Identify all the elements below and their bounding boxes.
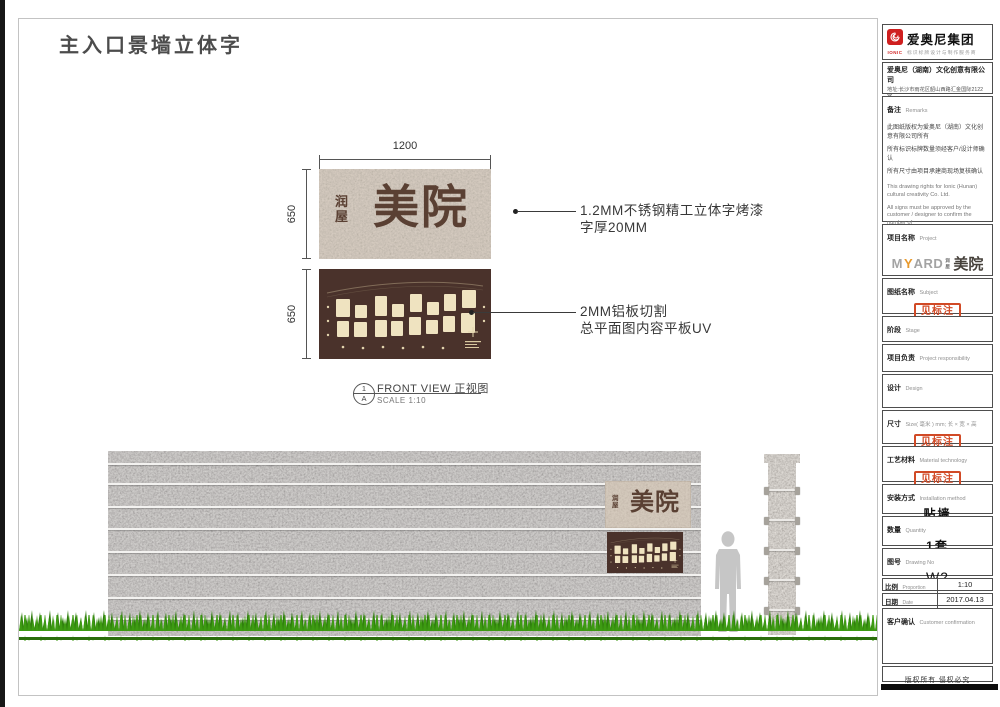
copyright-box: 版权所有 侵权必究 xyxy=(882,666,993,682)
myard-logo-small: 润屋 xyxy=(945,258,951,269)
installation-label-en: Installation method xyxy=(919,496,965,502)
site-plan-graphic xyxy=(607,532,683,573)
column-nub xyxy=(764,517,769,525)
drawing-no-box: 图号 Drawing No W2 xyxy=(882,548,993,576)
scan-edge-strip xyxy=(0,0,5,707)
stone-joint xyxy=(108,574,701,576)
responsibility-label-zh: 项目负责 xyxy=(887,355,915,362)
copyright-text: 版权所有 侵权必究 xyxy=(905,677,970,684)
wall-plan-panel xyxy=(607,532,683,573)
remarks-zh-3: 所有尺寸由项目承建商现场复核确认 xyxy=(887,168,988,177)
date-label-en: Date xyxy=(902,600,913,606)
dim-tick xyxy=(302,258,311,259)
myard-logo-accent: Y xyxy=(904,256,913,271)
remarks-en-1: This drawing rights for Ionic (Hunan) cu… xyxy=(887,184,988,200)
dim-tick xyxy=(302,358,311,359)
subject-label-zh: 图纸名称 xyxy=(887,289,915,296)
company-name: 爱奥尼（湖南）文化创意有限公司 xyxy=(887,65,988,85)
myard-logo-post: ARD xyxy=(914,256,944,271)
drawing-area: 主入口景墙立体字 1200 润屋 美院 650 650 xyxy=(18,18,878,696)
dim-width-line xyxy=(319,159,491,160)
view-scale: SCALE 1:10 xyxy=(377,396,426,405)
project-label-en: Project xyxy=(919,236,936,242)
note1-line2: 字厚20MM xyxy=(580,219,830,236)
brand-small-text: 润屋 xyxy=(612,495,620,510)
design-box: 设计 Design xyxy=(882,374,993,408)
stone-joint xyxy=(768,549,796,551)
size-box: 尺寸 Size( 毫米 ) mm; 长 × 宽 × 高 见标注 xyxy=(882,410,993,444)
date-value: 2017.04.13 xyxy=(938,595,992,604)
dim-width-label: 1200 xyxy=(319,140,491,152)
column-nub xyxy=(764,547,769,555)
title-block: IONIC 爱奥尼集团 标识标牌设计与制作服务商 爱奥尼（湖南）文化创意有限公司… xyxy=(881,0,998,707)
proportion-value: 1:10 xyxy=(938,580,992,589)
view-letter: A xyxy=(354,394,374,403)
column-nub xyxy=(795,547,800,555)
stage-label-en: Stage xyxy=(905,328,919,334)
material-note-2: 2MM铝板切割 总平面图内容平板UV xyxy=(580,303,830,338)
brand-large-text: 美院 xyxy=(621,491,689,515)
material-box: 工艺材料 Material technology 见标注 xyxy=(882,446,993,482)
responsibility-box: 项目负责 Project responsibility xyxy=(882,344,993,372)
quantity-box: 数量 Quantity 1套 xyxy=(882,516,993,546)
column-nub xyxy=(764,487,769,495)
remarks-zh-2: 所有标识标牌数量须经客户/设计师确认 xyxy=(887,146,988,164)
project-logo: M Y ARD 润屋 美院 xyxy=(887,253,988,274)
project-label-zh: 项目名称 xyxy=(887,235,915,242)
stone-joint xyxy=(768,579,796,581)
stone-joint xyxy=(108,463,701,465)
column-cap xyxy=(764,454,800,463)
subject-box: 图纸名称 Subject 见标注 xyxy=(882,278,993,314)
remarks-label-en: Remarks xyxy=(905,108,927,114)
dim-height-top-label: 650 xyxy=(286,199,298,229)
dim-height-bottom-label: 650 xyxy=(286,299,298,329)
stage-box: 阶段 Stage xyxy=(882,316,993,342)
stone-joint xyxy=(768,519,796,521)
leader-line xyxy=(473,312,576,313)
stone-joint xyxy=(108,528,701,530)
date-row: 日期 Date 2017.04.13 xyxy=(882,593,993,606)
site-plan-panel xyxy=(319,269,491,359)
company-group-name: 爱奥尼集团 xyxy=(907,29,977,48)
date-label-zh: 日期 xyxy=(885,599,898,606)
stage-label-zh: 阶段 xyxy=(887,327,901,334)
quantity-label-en: Quantity xyxy=(905,528,925,534)
material-label-zh: 工艺材料 xyxy=(887,457,915,464)
confirmation-label-zh: 客户确认 xyxy=(887,619,915,626)
column-nub xyxy=(795,577,800,585)
confirmation-label-en: Customer confirmation xyxy=(919,620,974,626)
remarks-zh-1: 此图纸版权为爱奥尼（湖南）文化创意有限公司所有 xyxy=(887,124,988,142)
company-info-box: 爱奥尼（湖南）文化创意有限公司 地址:长沙市雨花区韶山西路汇金国际2122室 电… xyxy=(882,62,993,94)
subject-label-en: Subject xyxy=(919,290,937,296)
note2-line1: 2MM铝板切割 xyxy=(580,303,830,320)
dim-height-bottom-line xyxy=(306,269,307,359)
page-title: 主入口景墙立体字 xyxy=(59,29,243,58)
myard-logo-brand: 美院 xyxy=(953,253,983,274)
brand-small-text: 润屋 xyxy=(335,195,350,224)
dim-tick xyxy=(302,269,311,270)
view-number: 1 xyxy=(354,384,374,394)
design-label-en: Design xyxy=(905,386,922,392)
column-nub xyxy=(795,487,800,495)
stone-joint xyxy=(768,489,796,491)
installation-box: 安装方式 Installation method 贴墙 xyxy=(882,484,993,514)
ionic-logo-text: IONIC xyxy=(887,50,903,55)
column-nub xyxy=(764,577,769,585)
dim-height-top-line xyxy=(306,169,307,259)
view-marker: 1 A xyxy=(353,383,375,405)
quantity-label-zh: 数量 xyxy=(887,527,901,534)
brand-large-text: 美院 xyxy=(353,185,489,231)
stone-joint xyxy=(108,597,701,599)
proportion-label-zh: 比例 xyxy=(885,584,898,591)
leader-line xyxy=(517,211,576,212)
footer-bar xyxy=(881,684,998,690)
ionic-spiral-icon xyxy=(887,29,903,45)
dim-tick xyxy=(302,169,311,170)
remarks-label-zh: 备注 xyxy=(887,107,901,114)
project-box: 项目名称 Project M Y ARD 润屋 美院 xyxy=(882,224,993,276)
drawing-no-label-en: Drawing No xyxy=(905,560,934,566)
view-title: FRONT VIEW 正视图 xyxy=(377,380,489,396)
note1-line1: 1.2MM不锈钢精工立体字烤漆 xyxy=(580,202,830,219)
company-tagline: 标识标牌设计与制作服务商 xyxy=(907,49,977,56)
column-nub xyxy=(795,517,800,525)
ionic-logo: IONIC xyxy=(887,29,903,55)
responsibility-label-en: Project responsibility xyxy=(919,356,969,362)
installation-label-zh: 安装方式 xyxy=(887,495,915,502)
confirmation-box: 客户确认 Customer confirmation xyxy=(882,608,993,664)
company-logo-box: IONIC 爱奥尼集团 标识标牌设计与制作服务商 xyxy=(882,24,993,60)
remarks-box: 备注 Remarks 此图纸版权为爱奥尼（湖南）文化创意有限公司所有 所有标识标… xyxy=(882,96,993,222)
drawing-no-label-zh: 图号 xyxy=(887,559,901,566)
sign-panel: 润屋 美院 xyxy=(319,169,491,259)
design-label-zh: 设计 xyxy=(887,385,901,392)
material-note-1: 1.2MM不锈钢精工立体字烤漆 字厚20MM xyxy=(580,202,830,237)
proportion-row: 比例 Proportion 1:10 xyxy=(882,578,993,591)
myard-logo-pre: M xyxy=(892,256,903,271)
grass-band xyxy=(19,605,877,643)
site-plan-graphic xyxy=(319,269,491,359)
material-label-en: Material technology xyxy=(919,458,967,464)
drawing-sheet: 主入口景墙立体字 1200 润屋 美院 650 650 xyxy=(0,0,1000,707)
wall-sign-panel: 润屋 美院 xyxy=(605,481,691,528)
note2-line2: 总平面图内容平板UV xyxy=(580,320,830,337)
size-label-en: Size( 毫米 ) mm; 长 × 宽 × 高 xyxy=(905,422,976,428)
size-label-zh: 尺寸 xyxy=(887,421,901,428)
